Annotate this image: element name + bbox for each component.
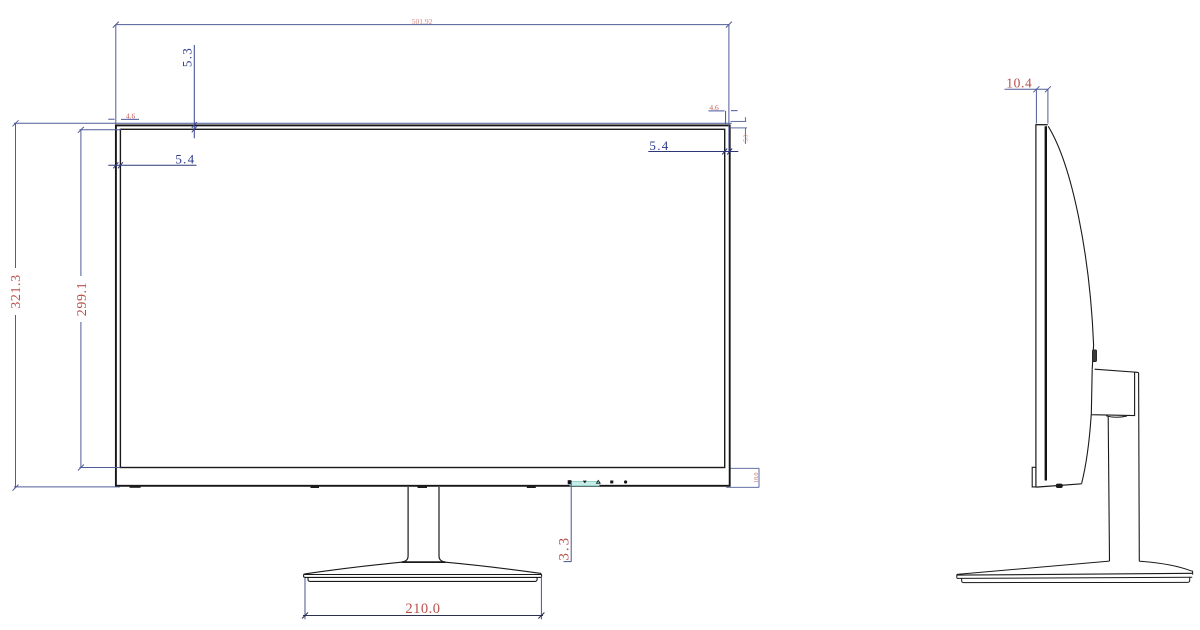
svg-text:3.3: 3.3 [557, 536, 573, 561]
svg-text:321.3: 321.3 [9, 274, 24, 309]
svg-text:5.4: 5.4 [175, 152, 195, 167]
svg-text:210.0: 210.0 [405, 601, 440, 617]
svg-text:5.3: 5.3 [744, 135, 750, 143]
svg-text:501.92: 501.92 [412, 17, 433, 26]
svg-text:4.6: 4.6 [126, 111, 136, 120]
svg-text:5.4: 5.4 [649, 138, 669, 153]
svg-text:299.1: 299.1 [75, 282, 90, 317]
svg-text:10.4: 10.4 [1006, 75, 1032, 90]
svg-text:5.3: 5.3 [180, 47, 195, 67]
svg-text:4.6: 4.6 [709, 103, 719, 112]
svg-text:18.0: 18.0 [754, 473, 760, 484]
